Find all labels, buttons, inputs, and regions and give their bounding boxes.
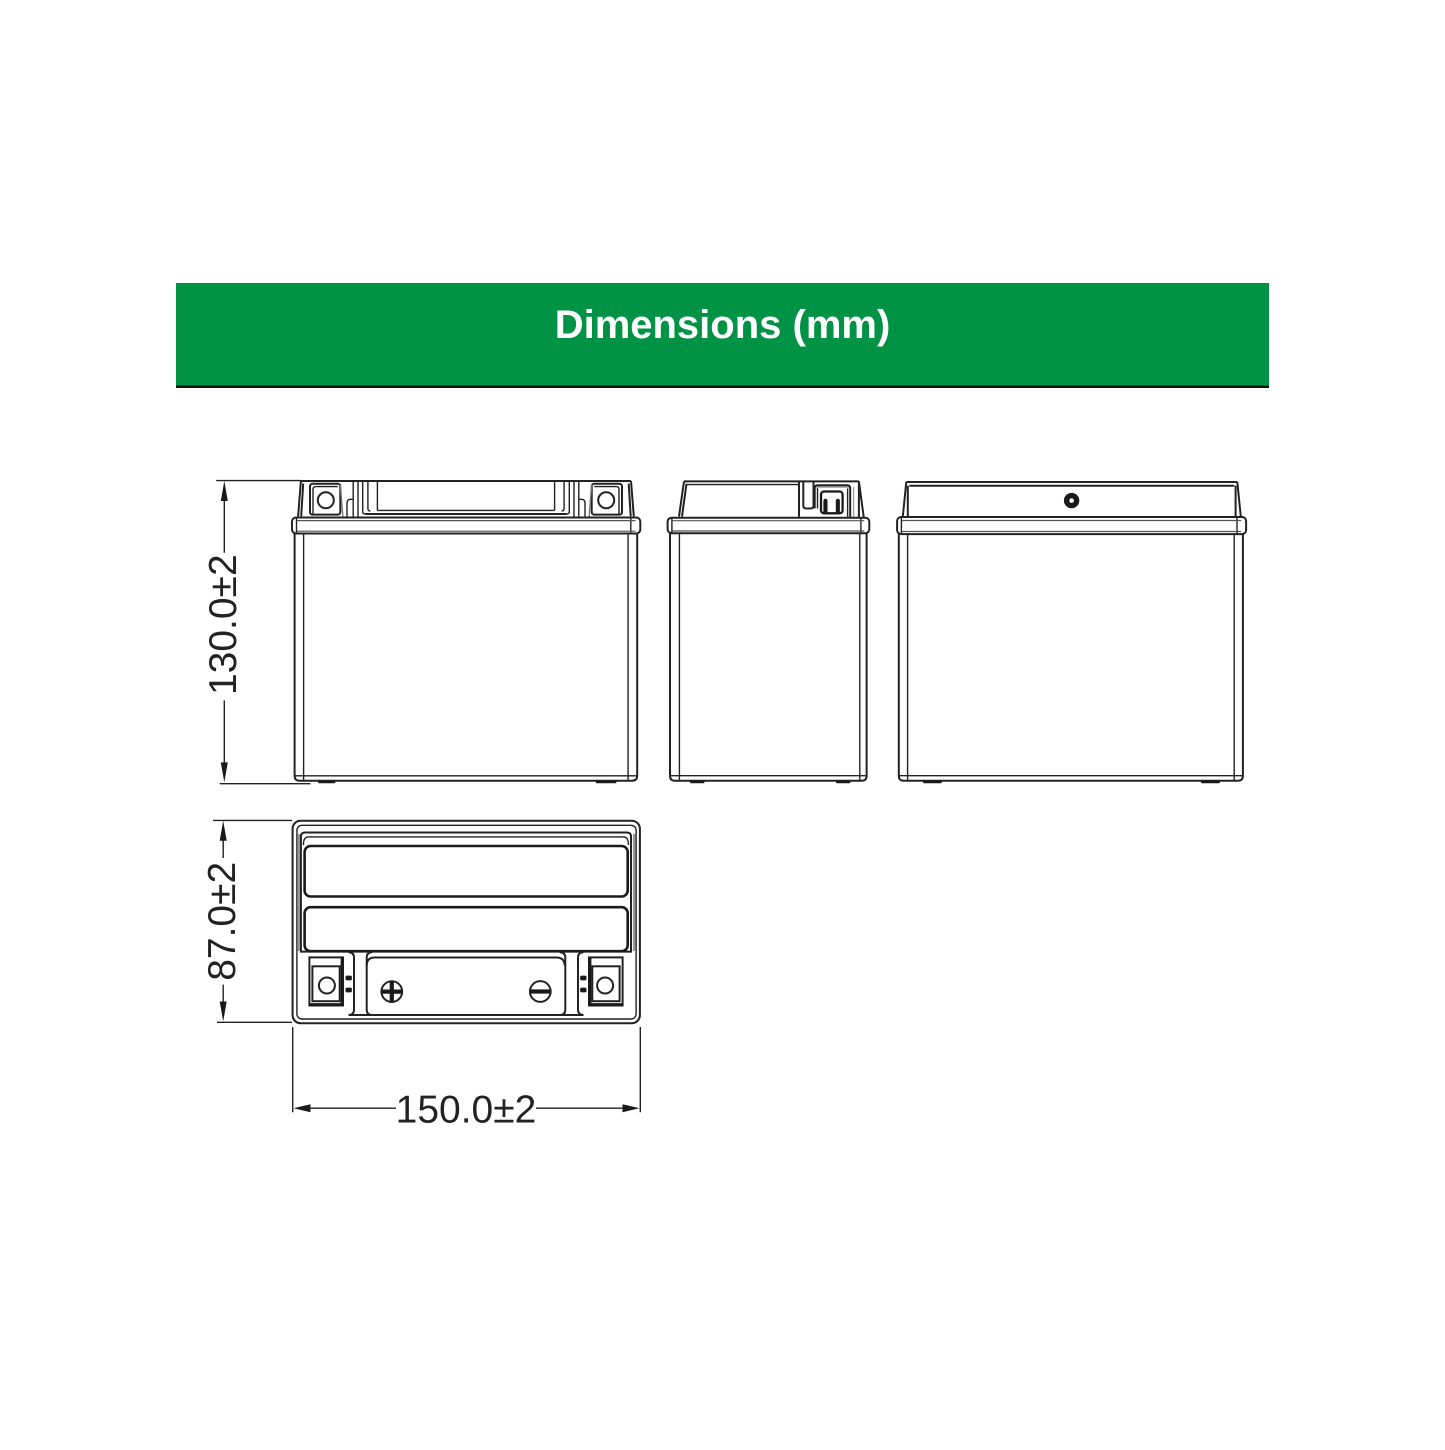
svg-text:150.0±2: 150.0±2 <box>396 1089 537 1132</box>
svg-text:130.0±2: 130.0±2 <box>202 554 245 695</box>
svg-text:Dimensions (mm): Dimensions (mm) <box>555 303 891 347</box>
svg-text:87.0±2: 87.0±2 <box>201 862 244 981</box>
